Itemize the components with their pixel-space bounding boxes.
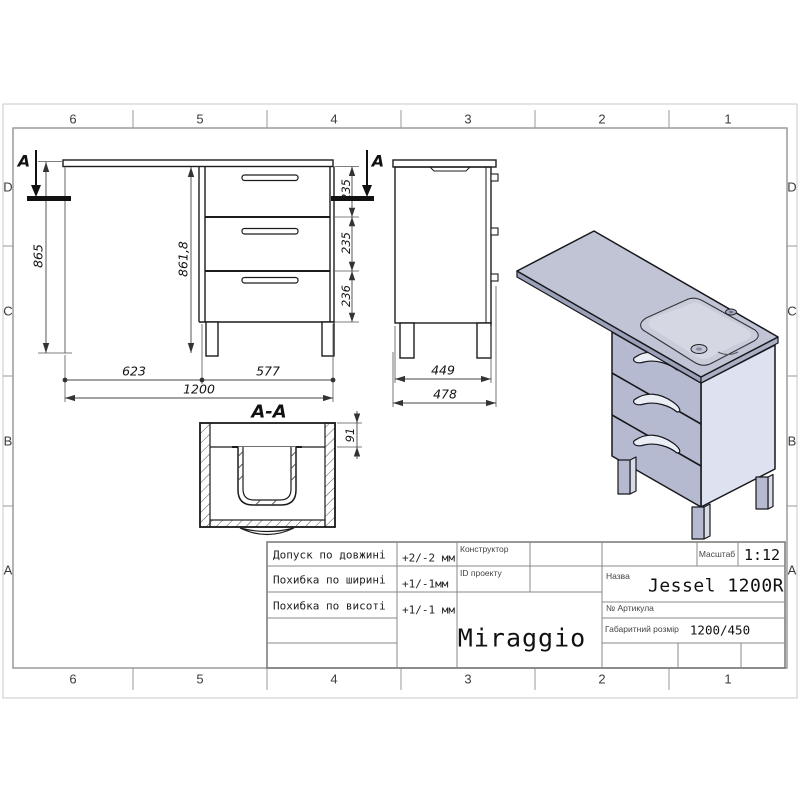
front-view-linework — [63, 160, 334, 356]
grid-col-label: 5 — [196, 672, 203, 687]
grid-col-label: 2 — [598, 672, 605, 687]
grid-col-label: 4 — [330, 112, 337, 127]
grid-col-label: 4 — [330, 672, 337, 687]
article-label: № Артикула — [606, 603, 654, 613]
scale-value: 1:12 — [744, 546, 780, 564]
section-letter: A — [372, 152, 384, 171]
overall-size-label: Габаритний розмір — [605, 624, 679, 634]
name-label: Назва — [606, 571, 630, 581]
grid-col-label: 6 — [69, 112, 76, 127]
brand-logo: Miraggio — [458, 624, 586, 653]
tolerance-height-value: +1/-1 мм — [402, 604, 455, 617]
grid-row-label: B — [788, 434, 797, 449]
dim-width-1200: 1200 — [183, 382, 215, 397]
dim-drawer2-235: 235 — [339, 232, 353, 254]
grid-row-label: A — [788, 563, 797, 578]
grid-col-label: 2 — [598, 112, 605, 127]
dim-height-865: 865 — [31, 244, 46, 268]
section-view-linework — [200, 423, 335, 535]
render-3d — [517, 231, 778, 539]
dim-depth-478: 478 — [433, 387, 457, 402]
section-cut-markers — [27, 150, 374, 201]
tolerance-length-value: +2/-2 мм — [402, 552, 455, 565]
grid-row-label: D — [3, 180, 12, 195]
scale-label: Масштаб — [699, 549, 735, 559]
tolerance-length-label: Допуск по довжині — [273, 549, 386, 562]
grid-col-label: 5 — [196, 112, 203, 127]
grid-row-label: C — [3, 304, 12, 319]
section-letter: A — [18, 152, 30, 171]
dim-apron-91: 91 — [343, 428, 357, 443]
grid-col-label: 1 — [724, 672, 731, 687]
grid-col-label: 3 — [464, 672, 471, 687]
overall-size-value: 1200/450 — [690, 623, 750, 638]
grid-row-label: C — [787, 304, 796, 319]
designer-label: Конструктор — [460, 544, 508, 554]
grid-col-label: 1 — [724, 112, 731, 127]
side-view-linework — [393, 160, 498, 358]
dim-depth-449: 449 — [431, 363, 455, 378]
grid-row-label: A — [4, 563, 13, 578]
grid-col-label: 6 — [69, 672, 76, 687]
sheet: 6 5 4 3 2 1 6 5 4 3 2 1 D C B A D C B A … — [0, 0, 800, 800]
dim-drawer3-236: 236 — [339, 285, 353, 307]
tolerance-height-label: Похибка по висоті — [273, 600, 386, 613]
grid-row-label: D — [787, 180, 796, 195]
drawing-sheet: { "sheet": { "grid_top": ["6","5","4","3… — [0, 0, 800, 800]
project-id-label: ID проекту — [460, 568, 502, 578]
section-title: A-A — [251, 402, 286, 423]
tolerance-width-label: Похибка по ширині — [273, 574, 386, 587]
drawing-linework — [0, 0, 800, 800]
dim-width-623: 623 — [122, 364, 146, 379]
dim-width-577: 577 — [256, 364, 280, 379]
tolerance-width-value: +1/-1мм — [402, 578, 448, 591]
dim-inner-height-8618: 861,8 — [176, 241, 191, 277]
grid-row-label: B — [4, 434, 13, 449]
dim-drawer1-235: 235 — [339, 179, 353, 201]
model-name: Jessel 1200R — [648, 576, 784, 597]
grid-col-label: 3 — [464, 112, 471, 127]
